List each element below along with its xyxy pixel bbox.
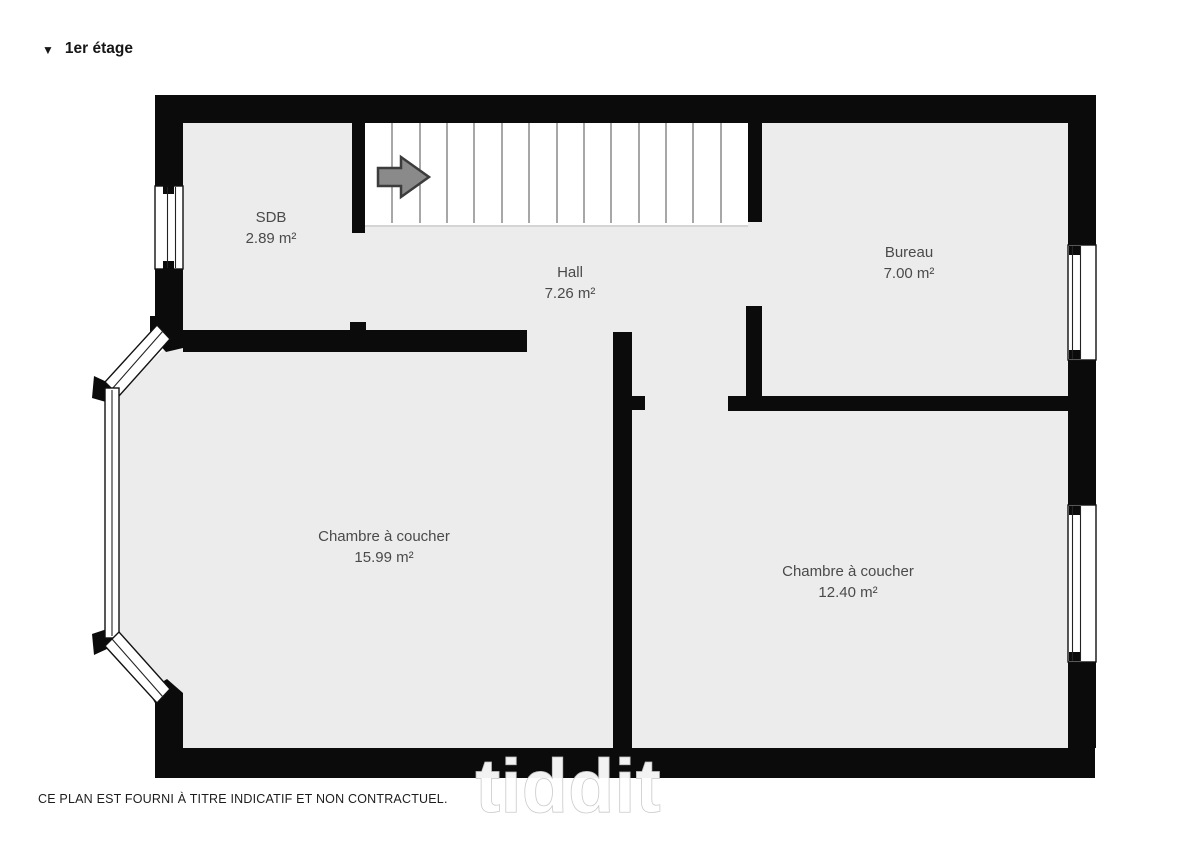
stair-wall-left	[352, 123, 365, 233]
room-area: 7.00 m²	[884, 265, 935, 282]
wall-between-bedrooms	[613, 332, 632, 748]
wall-bureau-bedroom	[728, 396, 1068, 411]
outer-wall-right-mid	[1068, 360, 1096, 505]
window-right-lower	[1068, 505, 1096, 662]
room-area: 12.40 m²	[818, 584, 877, 601]
stair-wall-right	[748, 123, 762, 222]
room-name: Chambre à coucher	[782, 563, 914, 580]
wall-sdb-bedroom	[183, 330, 527, 352]
outer-wall-top	[155, 95, 1095, 123]
room-area: 2.89 m²	[246, 230, 297, 247]
room-name: Bureau	[885, 244, 933, 261]
outer-wall-left-upper	[155, 95, 183, 187]
window-right-upper	[1068, 245, 1096, 360]
staircase	[365, 123, 748, 227]
outer-wall-right-lower	[1068, 662, 1096, 748]
wall-sdb-door-stub	[350, 322, 366, 330]
room-name: Chambre à coucher	[318, 528, 450, 545]
wall-hall-bureau	[746, 306, 762, 397]
floor-plan: SDB 2.89 m² Hall 7.26 m² Bureau 7.00 m² …	[0, 0, 1200, 848]
watermark: tiddit	[475, 744, 661, 829]
disclaimer-text: CE PLAN EST FOURNI À TITRE INDICATIF ET …	[38, 792, 448, 806]
room-name: Hall	[557, 264, 583, 281]
wall-bedroom-stub	[632, 396, 645, 410]
room-area: 7.26 m²	[545, 285, 596, 302]
room-name: SDB	[256, 209, 287, 226]
room-area: 15.99 m²	[354, 549, 413, 566]
outer-wall-right-upper	[1068, 95, 1096, 245]
window-left	[155, 186, 183, 269]
